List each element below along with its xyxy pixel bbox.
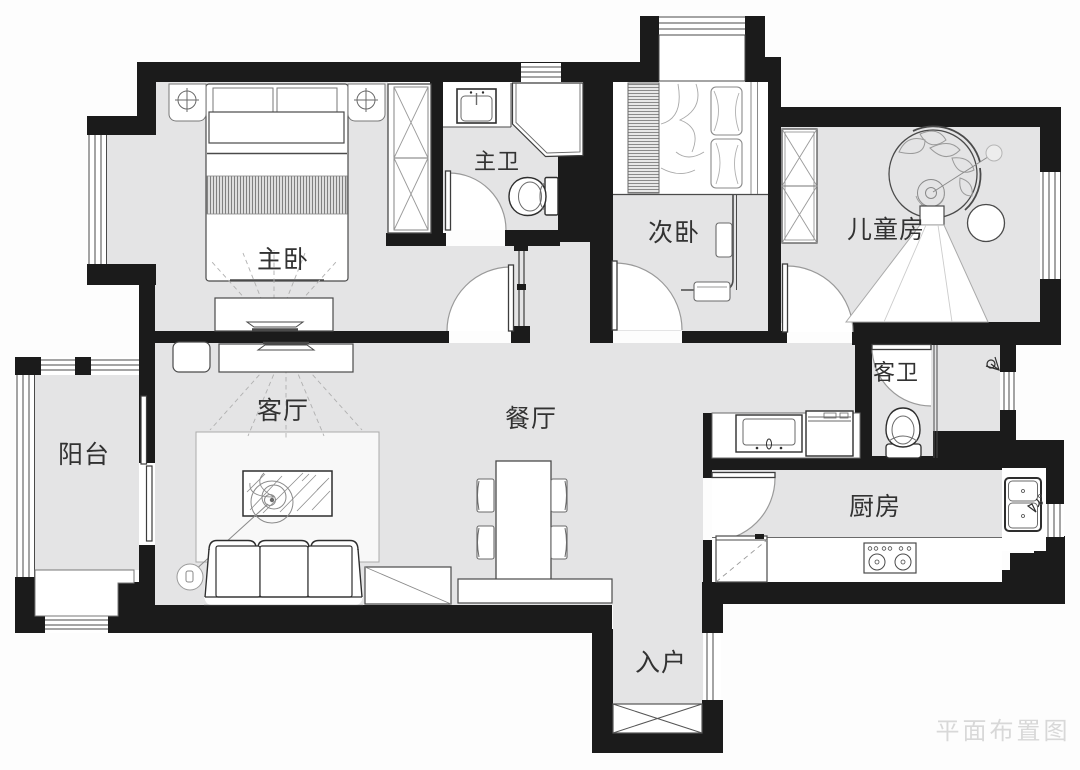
svg-text:餐厅: 餐厅 bbox=[505, 405, 557, 433]
svg-text:阳台: 阳台 bbox=[58, 441, 110, 469]
svg-text:客厅: 客厅 bbox=[257, 397, 309, 425]
svg-text:客卫: 客卫 bbox=[873, 360, 919, 385]
svg-text:平面布置图: 平面布置图 bbox=[936, 718, 1071, 745]
svg-text:次卧: 次卧 bbox=[648, 219, 700, 247]
svg-text:儿童房: 儿童房 bbox=[847, 216, 925, 244]
svg-text:入户: 入户 bbox=[635, 649, 687, 677]
svg-text:主卫: 主卫 bbox=[474, 149, 520, 174]
svg-text:主卧: 主卧 bbox=[257, 246, 309, 274]
svg-text:厨房: 厨房 bbox=[849, 493, 901, 521]
